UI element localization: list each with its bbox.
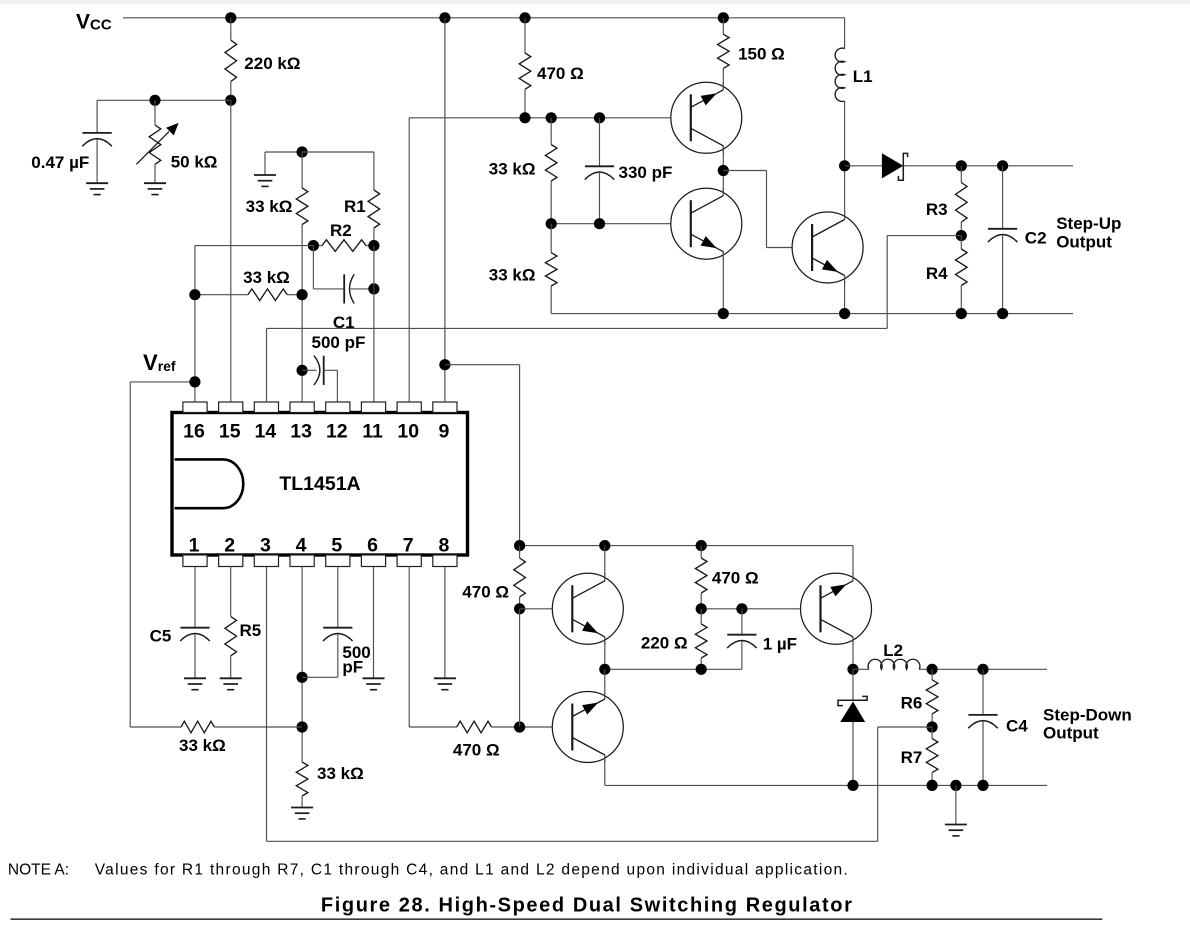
svg-text:Values for R1 through R7, C1 t: Values for R1 through R7, C1 through C4,… [95,862,849,879]
svg-text:150 Ω: 150 Ω [738,45,785,64]
svg-text:0.47 µF: 0.47 µF [31,153,89,172]
svg-text:33 kΩ: 33 kΩ [489,265,536,284]
svg-text:33 kΩ: 33 kΩ [243,268,290,287]
svg-text:5: 5 [331,535,342,557]
svg-text:Figure 28. High-Speed Dual Swi: Figure 28. High-Speed Dual Switching Reg… [321,895,854,917]
svg-text:14: 14 [255,421,277,443]
svg-text:470 Ω: 470 Ω [462,583,509,602]
svg-text:8: 8 [438,535,449,557]
svg-text:R6: R6 [901,694,923,713]
svg-text:Step-Up: Step-Up [1056,214,1121,233]
svg-text:R1: R1 [344,197,366,216]
svg-text:pF: pF [342,657,363,676]
svg-text:6: 6 [367,535,378,557]
svg-text:470 Ω: 470 Ω [453,741,500,760]
svg-text:470 Ω: 470 Ω [712,569,759,588]
svg-text:33 kΩ: 33 kΩ [179,736,226,755]
svg-text:1: 1 [189,535,200,557]
svg-text:33 kΩ: 33 kΩ [489,160,536,179]
svg-text:500 pF: 500 pF [312,333,366,352]
svg-text:13: 13 [290,421,312,443]
svg-text:9: 9 [438,421,449,443]
svg-text:C1: C1 [333,313,355,332]
svg-text:C2: C2 [1025,229,1047,248]
svg-text:7: 7 [403,535,414,557]
svg-text:R3: R3 [926,200,948,219]
svg-text:Vref: Vref [143,350,176,375]
svg-text:Output: Output [1043,724,1099,743]
svg-text:4: 4 [296,535,307,557]
svg-text:R5: R5 [240,621,262,640]
svg-text:10: 10 [397,421,419,443]
svg-text:C4: C4 [1006,717,1028,736]
svg-text:33 kΩ: 33 kΩ [317,764,364,783]
svg-text:12: 12 [326,421,348,443]
svg-text:330 pF: 330 pF [619,163,673,182]
svg-text:VCC: VCC [76,11,112,34]
svg-text:16: 16 [183,421,205,443]
svg-text:470 Ω: 470 Ω [537,64,584,83]
svg-text:L2: L2 [883,641,903,660]
svg-text:R7: R7 [901,748,923,767]
svg-text:220 Ω: 220 Ω [641,634,688,653]
svg-text:1 µF: 1 µF [763,635,797,654]
svg-text:2: 2 [224,535,235,557]
svg-text:NOTE A:: NOTE A: [8,862,69,879]
svg-text:220 kΩ: 220 kΩ [244,54,300,73]
svg-text:15: 15 [219,421,241,443]
svg-text:Step-Down: Step-Down [1043,705,1132,724]
svg-text:50 kΩ: 50 kΩ [171,153,218,172]
svg-text:R2: R2 [330,221,352,240]
svg-text:TL1451A: TL1451A [279,473,360,495]
svg-text:3: 3 [260,535,271,557]
svg-text:Output: Output [1056,233,1112,252]
svg-text:C5: C5 [150,627,172,646]
svg-text:33 kΩ: 33 kΩ [246,197,293,216]
svg-text:11: 11 [362,421,383,443]
svg-text:L1: L1 [853,67,873,86]
svg-text:R4: R4 [926,264,948,283]
